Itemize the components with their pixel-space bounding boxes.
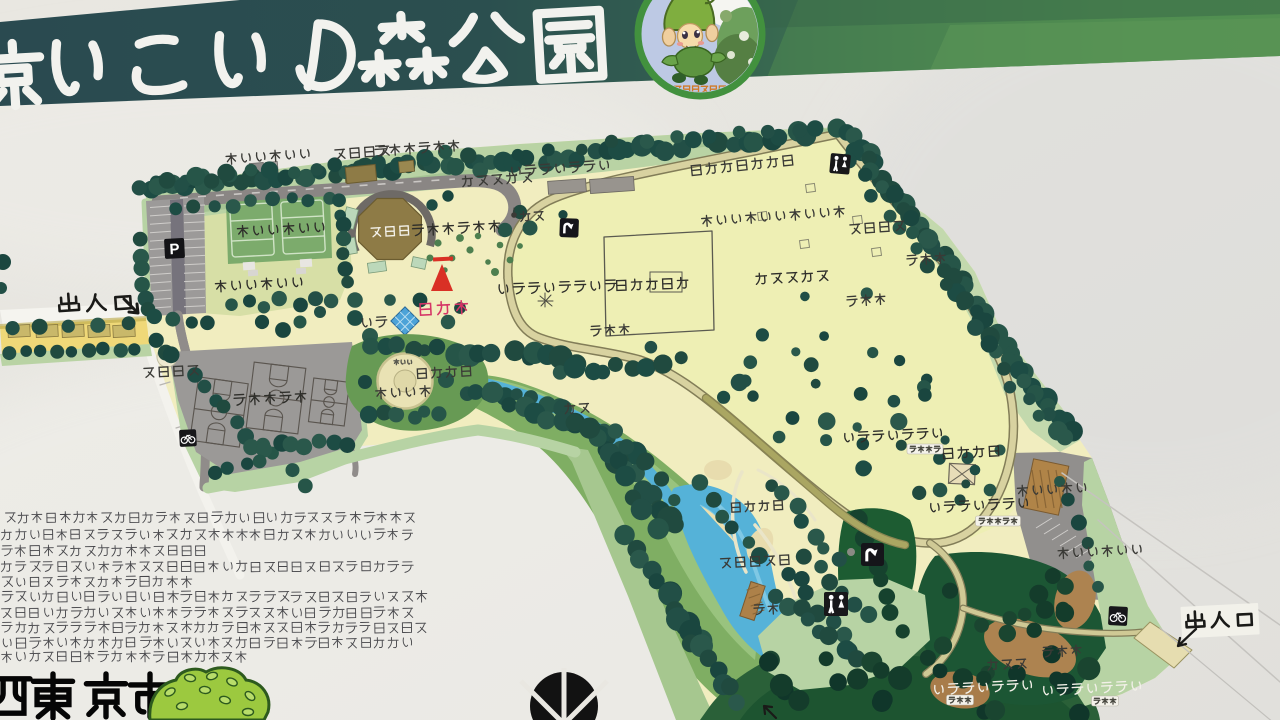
svg-text:P: P (169, 241, 180, 259)
